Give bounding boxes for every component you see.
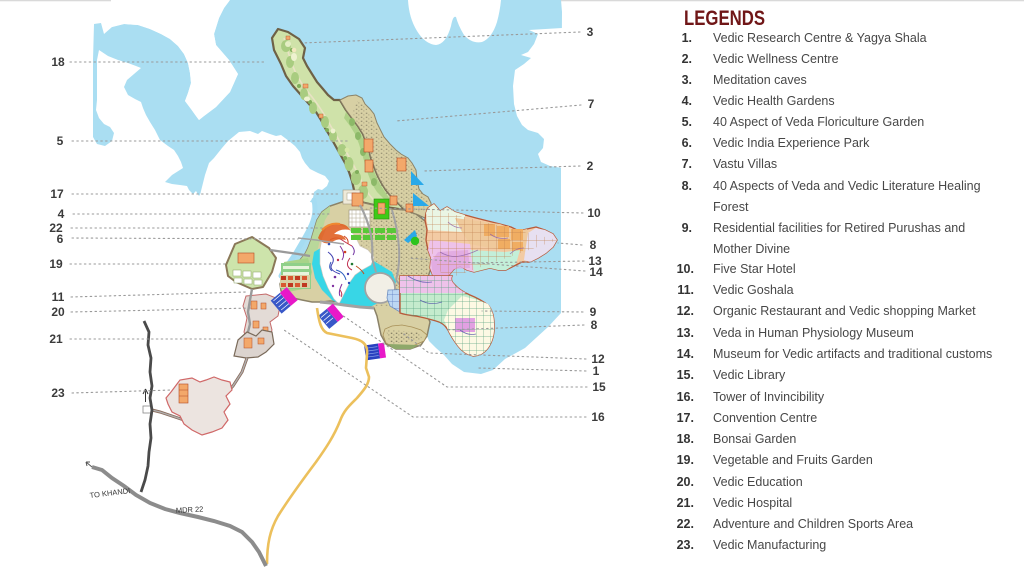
svg-text:Vastu Villas: Vastu Villas xyxy=(713,157,777,171)
svg-text:Vedic India Experience Park: Vedic India Experience Park xyxy=(713,136,870,150)
svg-text:Veda in Human Physiology Museu: Veda in Human Physiology Museum xyxy=(713,326,914,340)
svg-text:12.: 12. xyxy=(677,304,694,318)
svg-text:Adventure and Children Sports: Adventure and Children Sports Area xyxy=(713,517,913,531)
svg-text:1.: 1. xyxy=(682,31,692,45)
svg-text:13.: 13. xyxy=(677,326,694,340)
svg-text:10.: 10. xyxy=(677,262,694,276)
svg-text:8: 8 xyxy=(590,238,597,252)
svg-text:5.: 5. xyxy=(682,115,692,129)
svg-text:23.: 23. xyxy=(677,538,694,552)
svg-text:11.: 11. xyxy=(677,283,694,297)
svg-text:10: 10 xyxy=(587,206,601,220)
svg-text:Forest: Forest xyxy=(713,200,749,214)
svg-text:18: 18 xyxy=(51,55,65,69)
svg-text:16.: 16. xyxy=(677,390,694,404)
svg-text:Tower of Invincibility: Tower of Invincibility xyxy=(713,390,825,404)
svg-text:18.: 18. xyxy=(677,432,694,446)
svg-text:17.: 17. xyxy=(677,411,694,425)
svg-text:6: 6 xyxy=(57,232,64,246)
svg-text:9: 9 xyxy=(590,305,597,319)
svg-text:7.: 7. xyxy=(682,157,692,171)
svg-text:Organic Restaurant and Vedic s: Organic Restaurant and Vedic shopping Ma… xyxy=(713,304,976,318)
svg-text:Vedic Goshala: Vedic Goshala xyxy=(713,283,794,297)
svg-text:Meditation caves: Meditation caves xyxy=(713,73,807,87)
svg-text:3.: 3. xyxy=(682,73,692,87)
svg-text:4.: 4. xyxy=(682,94,692,108)
svg-text:MDR 22: MDR 22 xyxy=(176,505,204,515)
svg-text:19: 19 xyxy=(49,257,63,271)
svg-text:4: 4 xyxy=(58,207,65,221)
svg-text:5: 5 xyxy=(57,134,64,148)
svg-text:2.: 2. xyxy=(682,52,692,66)
svg-text:22.: 22. xyxy=(677,517,694,531)
svg-text:23: 23 xyxy=(51,386,65,400)
svg-text:Vedic Wellness Centre: Vedic Wellness Centre xyxy=(713,52,839,66)
svg-text:Vedic Manufacturing: Vedic Manufacturing xyxy=(713,538,826,552)
svg-text:Residential facilities for Ret: Residential facilities for Retired Purus… xyxy=(713,221,965,235)
svg-text:Mother Divine: Mother Divine xyxy=(713,242,790,256)
svg-text:LEGENDS: LEGENDS xyxy=(684,7,765,30)
svg-text:Five Star Hotel: Five Star Hotel xyxy=(713,262,796,276)
svg-text:19.: 19. xyxy=(677,453,694,467)
svg-text:Vedic Health Gardens: Vedic Health Gardens xyxy=(713,94,835,108)
svg-text:Vegetable and Fruits Garden: Vegetable and Fruits Garden xyxy=(713,453,873,467)
svg-text:8.: 8. xyxy=(682,179,692,193)
svg-text:40 Aspect of Veda Floriculture: 40 Aspect of Veda Floriculture Garden xyxy=(713,115,924,129)
svg-text:Convention Centre: Convention Centre xyxy=(713,411,817,425)
svg-text:20.: 20. xyxy=(677,475,694,489)
svg-text:15: 15 xyxy=(592,380,606,394)
svg-text:11: 11 xyxy=(52,290,65,304)
svg-text:16: 16 xyxy=(591,410,605,424)
svg-text:Bonsai Garden: Bonsai Garden xyxy=(713,432,796,446)
svg-text:17: 17 xyxy=(50,187,64,201)
svg-text:21: 21 xyxy=(49,332,63,346)
svg-text:3: 3 xyxy=(587,25,594,39)
svg-text:Vedic Research Centre & Yagya: Vedic Research Centre & Yagya Shala xyxy=(713,31,927,45)
svg-text:21.: 21. xyxy=(677,496,694,510)
svg-text:20: 20 xyxy=(51,305,65,319)
svg-text:2: 2 xyxy=(587,159,594,173)
svg-text:40 Aspects of Veda and Vedic L: 40 Aspects of Veda and Vedic Literature … xyxy=(713,179,981,193)
svg-text:8: 8 xyxy=(591,318,598,332)
svg-text:Vedic Hospital: Vedic Hospital xyxy=(713,496,792,510)
svg-text:15.: 15. xyxy=(677,368,694,382)
svg-text:9.: 9. xyxy=(682,221,692,235)
svg-text:Museum for Vedic artifacts and: Museum for Vedic artifacts and tradition… xyxy=(713,347,992,361)
svg-text:14: 14 xyxy=(589,265,603,279)
svg-text:1: 1 xyxy=(593,364,600,378)
svg-text:7: 7 xyxy=(588,97,595,111)
svg-text:Vedic Education: Vedic Education xyxy=(713,475,803,489)
svg-text:Vedic Library: Vedic Library xyxy=(713,368,786,382)
svg-text:6.: 6. xyxy=(682,136,692,150)
svg-text:14.: 14. xyxy=(677,347,694,361)
